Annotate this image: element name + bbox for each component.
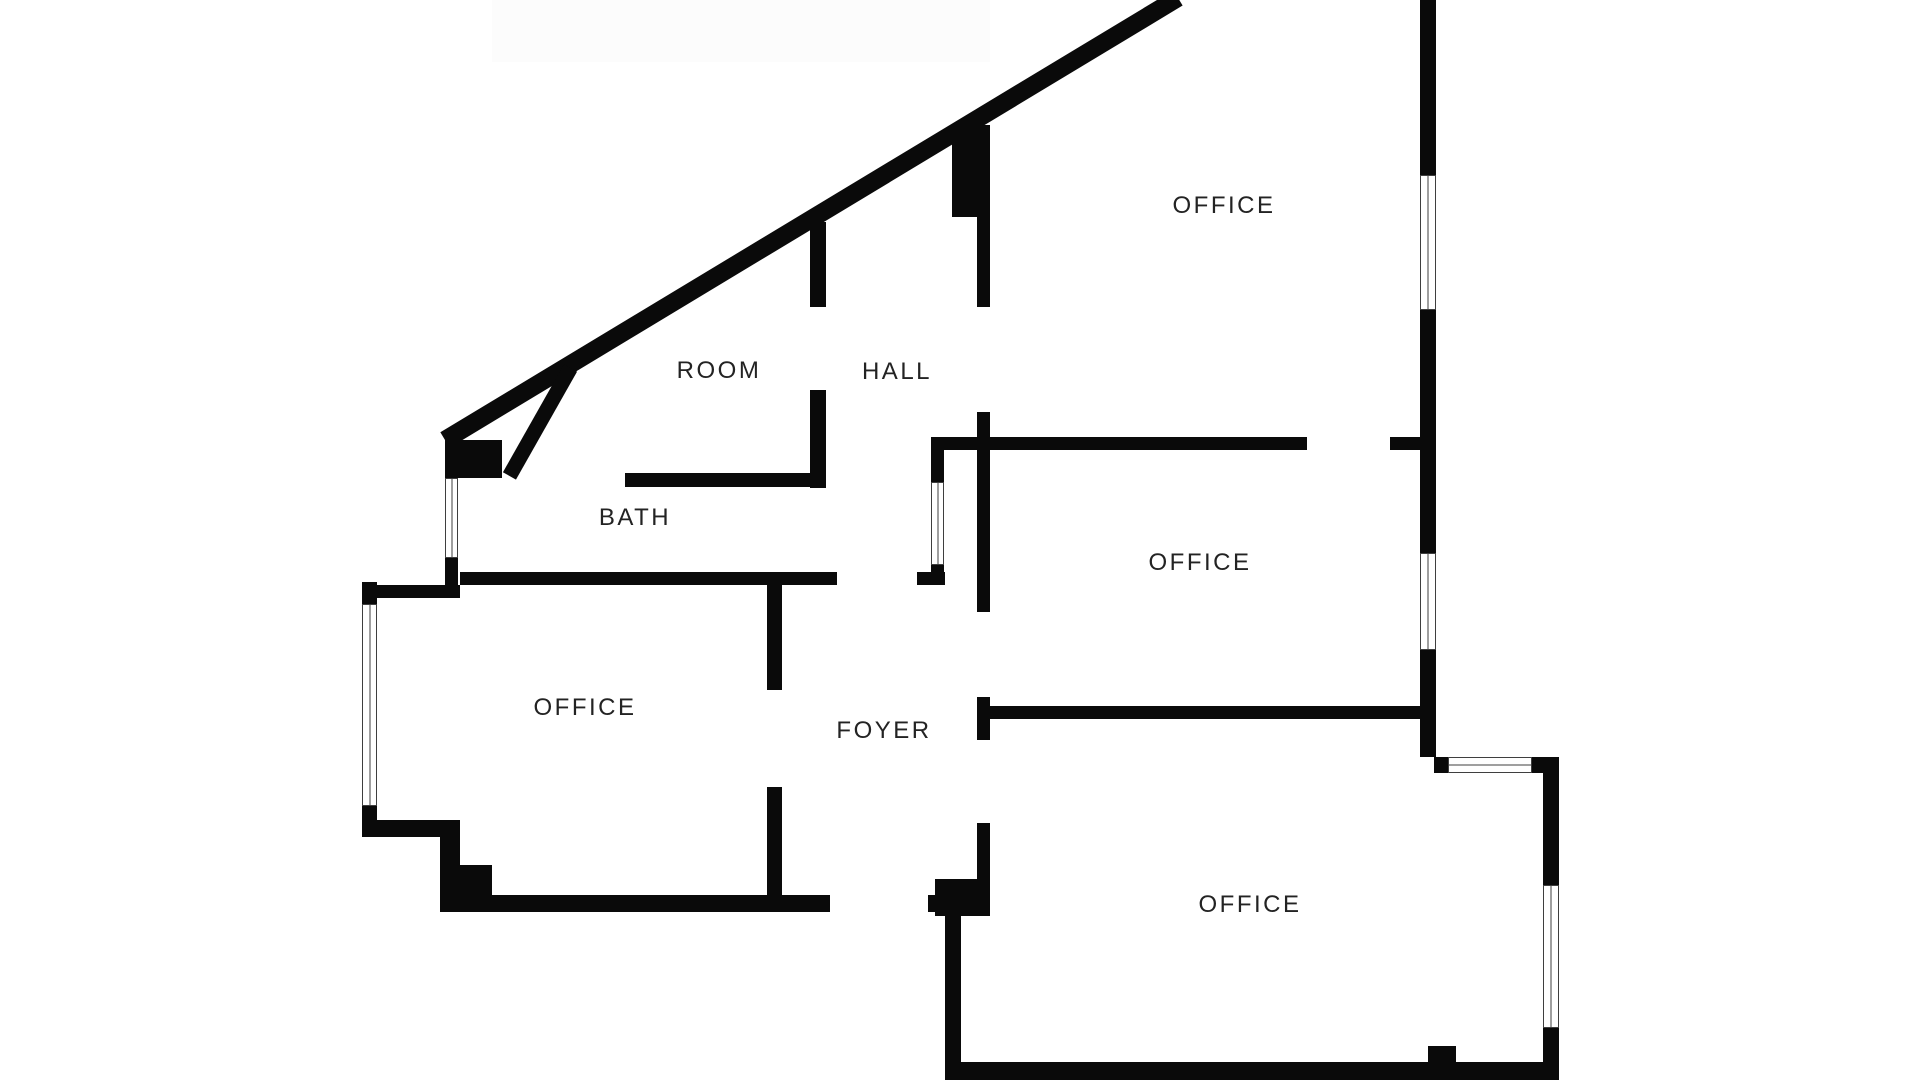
wall-corner-block-hall — [952, 125, 990, 217]
wall-segment — [987, 706, 1420, 719]
room-label-office-bottom: OFFICE — [1199, 891, 1302, 919]
room-label-office-top: OFFICE — [1173, 192, 1276, 220]
room-label-hall: HALL — [862, 358, 932, 386]
wall-segment — [931, 437, 1307, 450]
room-label-office-left: OFFICE — [534, 694, 637, 722]
office-left-window — [362, 604, 377, 806]
room-label-foyer: FOYER — [836, 717, 931, 745]
wall-segment — [1390, 437, 1420, 450]
wall-segment — [945, 1062, 1559, 1080]
shade-band — [492, 0, 990, 62]
wall-segment — [1428, 1046, 1456, 1062]
bath-window — [445, 478, 458, 558]
room-label-bath: BATH — [599, 504, 671, 532]
room-label-room: ROOM — [677, 357, 762, 385]
wall-segment — [445, 558, 458, 588]
wall-segment — [767, 787, 782, 912]
wall-segment — [625, 473, 812, 487]
wall-segment — [931, 565, 944, 585]
wall-segment — [810, 390, 826, 488]
wall-segment — [767, 582, 782, 690]
wall-corner-block-left — [445, 440, 502, 478]
interior-window — [931, 482, 944, 565]
office-middle-window — [1420, 553, 1436, 650]
wall-segment — [945, 897, 961, 1080]
office-top-window — [1420, 175, 1436, 310]
wall-segment — [460, 865, 492, 895]
wall-segment — [1434, 757, 1448, 773]
wall-segment — [1420, 310, 1436, 553]
office-bottom-top-window — [1448, 757, 1532, 773]
floor-plan: OFFICE ROOM HALL BATH OFFICE OFFICE FOYE… — [0, 0, 1920, 1080]
office-bottom-right-window — [1543, 885, 1559, 1028]
wall-segment — [1420, 650, 1436, 757]
wall-segment — [362, 820, 460, 837]
wall-segment — [1420, 0, 1436, 175]
wall-segment — [810, 222, 826, 307]
wall-segment — [362, 582, 377, 604]
room-label-office-middle: OFFICE — [1149, 549, 1252, 577]
wall-segment — [1543, 757, 1559, 885]
wall-segment — [977, 215, 990, 307]
wall-segment — [440, 837, 460, 895]
